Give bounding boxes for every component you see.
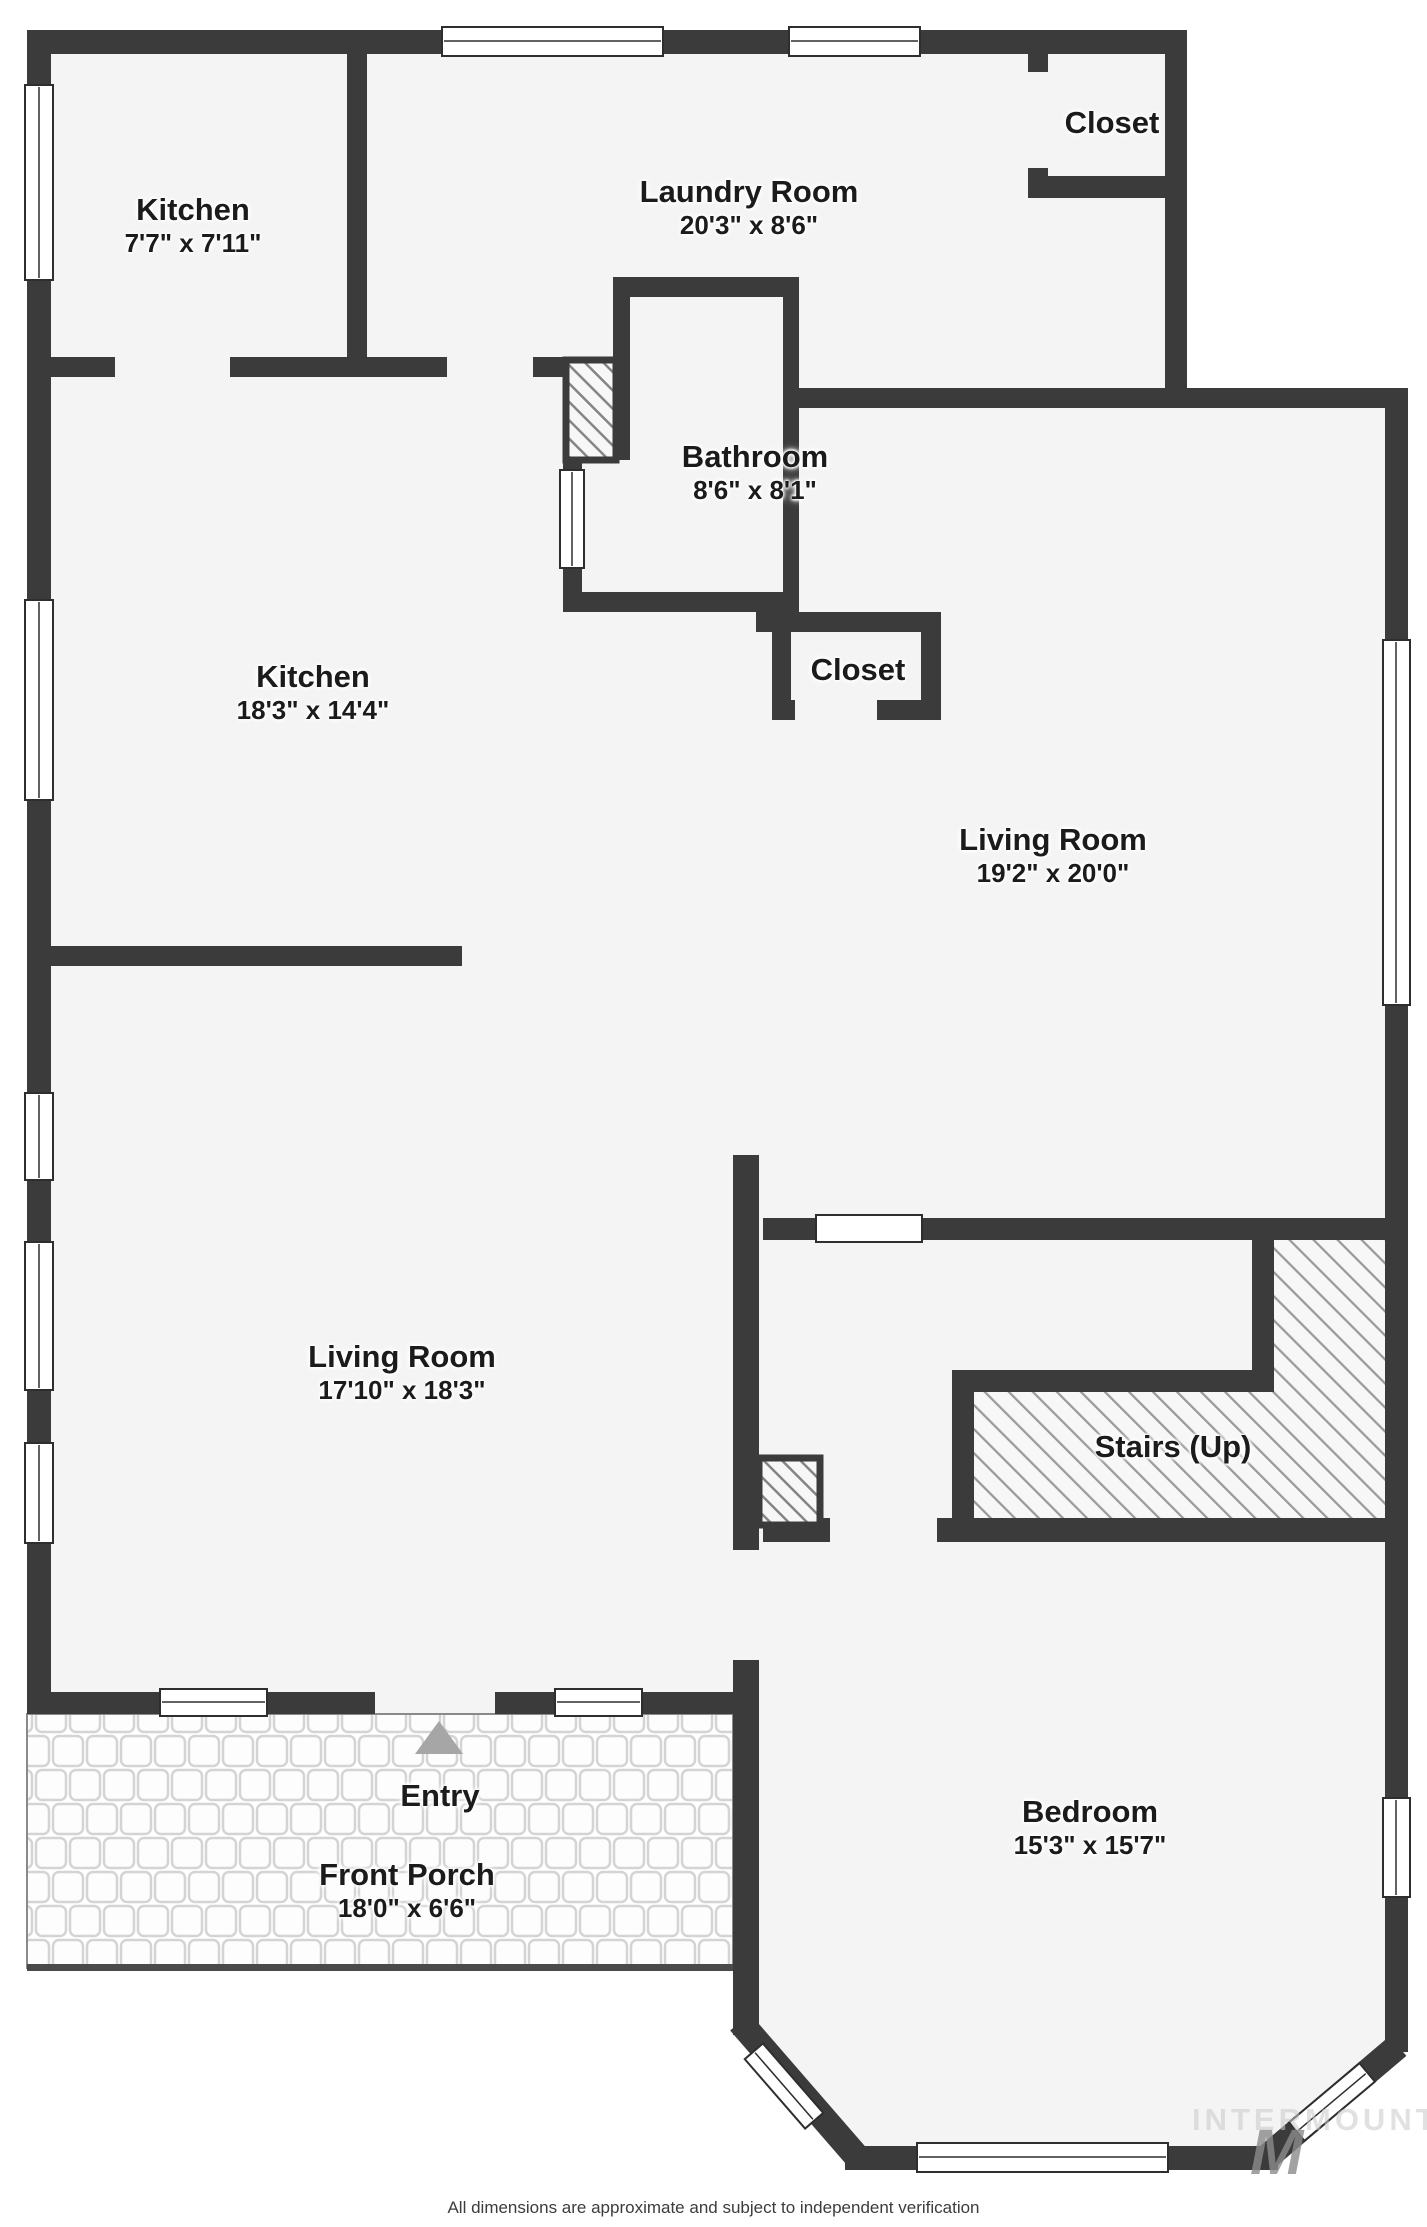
room-dims: 19'2" x 20'0": [959, 858, 1147, 888]
room-label-living-room-east: Living Room 19'2" x 20'0": [959, 821, 1147, 888]
room-name: Bedroom: [1014, 1793, 1167, 1830]
room-label-front-porch: Front Porch 18'0" x 6'6": [319, 1856, 495, 1923]
room-name: Living Room: [959, 821, 1147, 858]
room-dims: 7'7" x 7'11": [125, 228, 262, 258]
disclaimer-text: All dimensions are approximate and subje…: [0, 2198, 1427, 2218]
room-label-kitchen-main: Kitchen 18'3" x 14'4": [237, 658, 390, 725]
floorplan-page: .wall{fill:#3b3b3b;} .wline{stroke:#3b3b…: [0, 0, 1427, 2227]
room-label-kitchen-upper: Kitchen 7'7" x 7'11": [125, 191, 262, 258]
room-label-bedroom: Bedroom 15'3" x 15'7": [1014, 1793, 1167, 1860]
room-name: Kitchen: [237, 658, 390, 695]
room-name: Entry: [400, 1777, 479, 1814]
room-name: Kitchen: [125, 191, 262, 228]
room-dims: 15'3" x 15'7": [1014, 1830, 1167, 1860]
watermark-logo-m: M: [1250, 2120, 1303, 2184]
room-label-stairs-up: Stairs (Up): [1095, 1428, 1252, 1465]
front-porch-tiles: [27, 1714, 733, 1968]
room-label-living-room-west: Living Room 17'10" x 18'3": [308, 1338, 496, 1405]
room-dims: 18'0" x 6'6": [319, 1893, 495, 1923]
room-dims: 20'3" x 8'6": [640, 210, 859, 240]
floorplan-drawing: .wall{fill:#3b3b3b;} .wline{stroke:#3b3b…: [0, 0, 1427, 2227]
room-dims: 8'6" x 8'1": [682, 475, 828, 505]
room-name: Living Room: [308, 1338, 496, 1375]
room-label-laundry-room: Laundry Room 20'3" x 8'6": [640, 173, 859, 240]
room-label-closet-middle: Closet: [811, 651, 906, 688]
room-name: Closet: [811, 651, 906, 688]
watermark-text: INTERMOUNTAIN: [1192, 2102, 1427, 2138]
room-name: Laundry Room: [640, 173, 859, 210]
room-dims: 17'10" x 18'3": [308, 1375, 496, 1405]
room-label-closet-top: Closet: [1065, 104, 1160, 141]
room-name: Bathroom: [682, 438, 828, 475]
entry-arrow-icon: [415, 1721, 463, 1754]
room-name: Stairs (Up): [1095, 1428, 1252, 1465]
room-name: Closet: [1065, 104, 1160, 141]
room-dims: 18'3" x 14'4": [237, 695, 390, 725]
room-name: Front Porch: [319, 1856, 495, 1893]
room-label-entry: Entry: [400, 1777, 479, 1814]
room-label-bathroom: Bathroom 8'6" x 8'1": [682, 438, 828, 505]
